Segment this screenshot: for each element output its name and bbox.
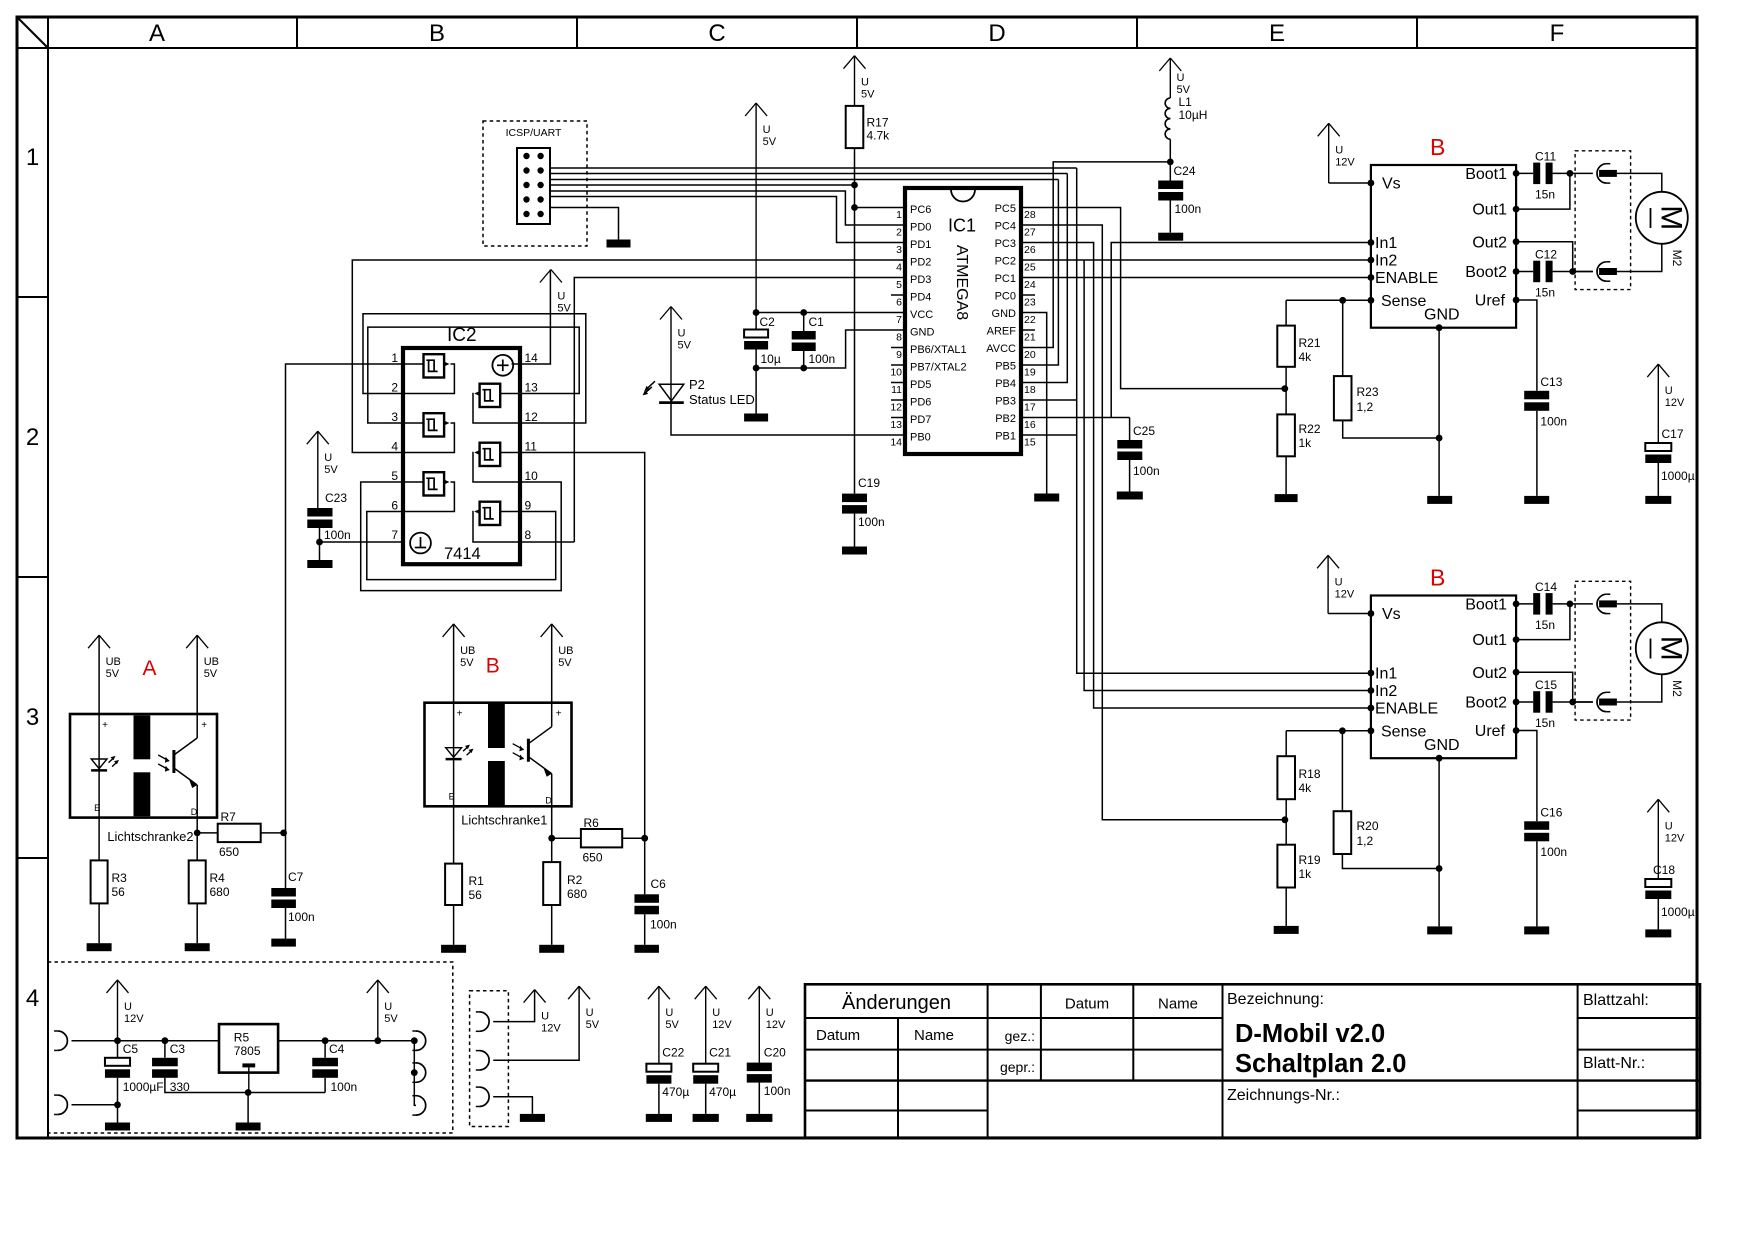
svg-text:P2: P2 bbox=[689, 377, 705, 392]
svg-text:Out2: Out2 bbox=[1472, 665, 1507, 682]
svg-text:PB5: PB5 bbox=[995, 361, 1016, 373]
svg-text:3: 3 bbox=[896, 244, 902, 256]
svg-text:100n: 100n bbox=[1175, 202, 1202, 216]
svg-text:5V: 5V bbox=[384, 1013, 398, 1025]
svg-text:PD7: PD7 bbox=[910, 414, 931, 426]
svg-text:R23: R23 bbox=[1357, 385, 1379, 399]
svg-text:U: U bbox=[124, 1001, 132, 1013]
svg-text:C4: C4 bbox=[329, 1042, 345, 1056]
svg-text:U: U bbox=[1665, 385, 1673, 397]
svg-text:100n: 100n bbox=[324, 528, 351, 542]
svg-text:GND: GND bbox=[1424, 307, 1460, 324]
svg-text:R6: R6 bbox=[584, 816, 600, 830]
svg-text:PD4: PD4 bbox=[910, 292, 931, 304]
svg-text:PB4: PB4 bbox=[995, 378, 1016, 390]
svg-text:+: + bbox=[556, 709, 562, 720]
svg-text:Vs: Vs bbox=[1382, 606, 1401, 623]
svg-text:12V: 12V bbox=[1665, 832, 1685, 844]
svg-text:PD5: PD5 bbox=[910, 379, 931, 391]
svg-text:R4: R4 bbox=[210, 871, 226, 885]
svg-text:Uref: Uref bbox=[1475, 723, 1506, 740]
svg-text:PC2: PC2 bbox=[995, 256, 1016, 268]
svg-text:Out1: Out1 bbox=[1472, 632, 1507, 649]
svg-text:24: 24 bbox=[1024, 279, 1036, 291]
svg-text:5V: 5V bbox=[586, 1019, 600, 1031]
svg-text:56: 56 bbox=[112, 885, 126, 899]
svg-text:11: 11 bbox=[525, 440, 538, 454]
svg-text:R22: R22 bbox=[1299, 422, 1321, 436]
svg-text:U: U bbox=[557, 291, 565, 303]
svg-text:C12: C12 bbox=[1535, 248, 1557, 262]
svg-text:100n: 100n bbox=[288, 910, 315, 924]
svg-text:5: 5 bbox=[896, 279, 902, 291]
svg-text:Boot1: Boot1 bbox=[1465, 597, 1507, 614]
svg-text:C22: C22 bbox=[662, 1046, 684, 1060]
svg-text:B: B bbox=[1430, 565, 1445, 591]
svg-text:15n: 15n bbox=[1535, 716, 1555, 730]
svg-text:100n: 100n bbox=[809, 352, 836, 366]
svg-text:PC3: PC3 bbox=[995, 238, 1016, 250]
svg-text:Boot1: Boot1 bbox=[1465, 166, 1507, 183]
svg-text:2: 2 bbox=[896, 227, 902, 239]
svg-text:+: + bbox=[102, 720, 108, 731]
svg-text:Name: Name bbox=[914, 1027, 954, 1044]
svg-text:4: 4 bbox=[26, 985, 39, 1012]
svg-text:PD0: PD0 bbox=[910, 222, 931, 234]
svg-text:C1: C1 bbox=[809, 315, 825, 329]
svg-text:2: 2 bbox=[391, 381, 398, 395]
svg-text:C: C bbox=[708, 20, 725, 47]
svg-text:U: U bbox=[1665, 820, 1673, 832]
svg-text:650: 650 bbox=[219, 845, 239, 859]
svg-text:Lichtschranke1: Lichtschranke1 bbox=[461, 813, 547, 828]
svg-text:100n: 100n bbox=[650, 918, 677, 932]
svg-text:PB2: PB2 bbox=[995, 413, 1016, 425]
svg-text:In2: In2 bbox=[1375, 253, 1397, 270]
svg-text:Out1: Out1 bbox=[1472, 202, 1507, 219]
svg-text:C11: C11 bbox=[1535, 150, 1556, 164]
svg-text:C19: C19 bbox=[858, 476, 880, 490]
svg-text:PB0: PB0 bbox=[910, 432, 931, 444]
svg-text:470µ: 470µ bbox=[662, 1085, 689, 1099]
svg-text:100n: 100n bbox=[1133, 464, 1160, 478]
svg-text:12: 12 bbox=[525, 410, 539, 424]
svg-text:C18: C18 bbox=[1653, 863, 1675, 877]
svg-text:C3: C3 bbox=[170, 1042, 186, 1056]
svg-text:PB1: PB1 bbox=[995, 431, 1016, 443]
svg-text:R2: R2 bbox=[567, 873, 583, 887]
svg-text:27: 27 bbox=[1024, 227, 1036, 239]
svg-text:C17: C17 bbox=[1662, 427, 1684, 441]
svg-text:25: 25 bbox=[1024, 262, 1036, 274]
svg-text:IC2: IC2 bbox=[447, 325, 477, 346]
svg-text:4: 4 bbox=[896, 262, 902, 274]
svg-text:8: 8 bbox=[896, 332, 902, 344]
svg-text:In1: In1 bbox=[1375, 666, 1397, 683]
svg-text:In1: In1 bbox=[1375, 235, 1397, 252]
svg-text:13: 13 bbox=[525, 381, 539, 395]
svg-text:1: 1 bbox=[391, 351, 398, 365]
svg-text:4k: 4k bbox=[1299, 350, 1313, 364]
svg-text:5V: 5V bbox=[763, 136, 777, 148]
svg-text:C14: C14 bbox=[1535, 580, 1557, 594]
svg-text:B: B bbox=[1430, 134, 1445, 160]
svg-text:E: E bbox=[1269, 20, 1285, 47]
svg-text:AVCC: AVCC bbox=[986, 343, 1016, 355]
svg-text:U: U bbox=[861, 77, 869, 89]
svg-text:100n: 100n bbox=[1540, 415, 1567, 429]
svg-text:1: 1 bbox=[26, 144, 39, 171]
svg-text:650: 650 bbox=[583, 851, 603, 865]
svg-text:22: 22 bbox=[1024, 314, 1036, 326]
svg-text:Lichtschranke2: Lichtschranke2 bbox=[107, 829, 193, 844]
svg-text:C20: C20 bbox=[764, 1046, 786, 1060]
svg-text:D-Mobil v2.0: D-Mobil v2.0 bbox=[1235, 1020, 1385, 1048]
svg-text:D: D bbox=[545, 796, 552, 806]
svg-text:AREF: AREF bbox=[987, 326, 1017, 338]
svg-text:5V: 5V bbox=[557, 303, 571, 315]
svg-text:Status LED: Status LED bbox=[689, 392, 755, 407]
svg-text:PC1: PC1 bbox=[995, 273, 1016, 285]
svg-text:UB: UB bbox=[460, 645, 475, 657]
svg-text:R19: R19 bbox=[1299, 853, 1321, 867]
svg-text:12V: 12V bbox=[1335, 156, 1355, 168]
svg-text:C25: C25 bbox=[1133, 424, 1155, 438]
svg-text:M2: M2 bbox=[1670, 250, 1684, 267]
svg-text:C23: C23 bbox=[325, 491, 347, 505]
svg-text:12V: 12V bbox=[1335, 588, 1355, 600]
svg-text:5V: 5V bbox=[861, 89, 875, 101]
svg-text:12V: 12V bbox=[766, 1019, 786, 1031]
svg-text:15n: 15n bbox=[1535, 188, 1555, 202]
svg-text:R3: R3 bbox=[112, 871, 128, 885]
svg-text:PC0: PC0 bbox=[995, 291, 1016, 303]
svg-text:5V: 5V bbox=[204, 668, 218, 680]
svg-text:1k: 1k bbox=[1299, 867, 1313, 881]
svg-text:5V: 5V bbox=[324, 464, 338, 476]
svg-text:13: 13 bbox=[890, 419, 902, 431]
svg-text:15n: 15n bbox=[1535, 618, 1555, 632]
svg-text:GND: GND bbox=[1424, 737, 1460, 754]
svg-text:100n: 100n bbox=[764, 1084, 791, 1098]
svg-text:23: 23 bbox=[1024, 297, 1036, 309]
svg-text:C5: C5 bbox=[123, 1042, 139, 1056]
svg-text:U: U bbox=[1177, 72, 1185, 84]
svg-text:B: B bbox=[486, 655, 500, 678]
svg-text:12V: 12V bbox=[712, 1019, 732, 1031]
svg-text:M2: M2 bbox=[1670, 680, 1684, 697]
svg-text:R1: R1 bbox=[469, 874, 485, 888]
svg-text:R21: R21 bbox=[1299, 336, 1321, 350]
svg-text:U: U bbox=[1335, 576, 1343, 588]
svg-text:12V: 12V bbox=[541, 1023, 561, 1035]
svg-text:10: 10 bbox=[525, 469, 539, 483]
svg-text:Datum: Datum bbox=[1065, 996, 1109, 1013]
svg-text:3: 3 bbox=[391, 410, 398, 424]
svg-text:VCC: VCC bbox=[910, 309, 933, 321]
svg-text:C15: C15 bbox=[1535, 678, 1557, 692]
svg-text:D: D bbox=[191, 807, 198, 817]
svg-text:15n: 15n bbox=[1535, 286, 1555, 300]
svg-text:5V: 5V bbox=[665, 1019, 679, 1031]
svg-text:R17: R17 bbox=[867, 116, 889, 130]
svg-text:100n: 100n bbox=[858, 515, 885, 529]
svg-text:M: M bbox=[1654, 205, 1687, 230]
svg-text:680: 680 bbox=[567, 887, 587, 901]
svg-text:ENABLE: ENABLE bbox=[1375, 701, 1438, 718]
svg-text:Out2: Out2 bbox=[1472, 234, 1507, 251]
svg-text:U: U bbox=[324, 452, 332, 464]
svg-text:4.7k: 4.7k bbox=[867, 129, 891, 143]
svg-text:R20: R20 bbox=[1357, 819, 1379, 833]
svg-text:ICSP/UART: ICSP/UART bbox=[506, 127, 562, 139]
svg-text:PB3: PB3 bbox=[995, 396, 1016, 408]
svg-text:15: 15 bbox=[1024, 437, 1036, 449]
svg-text:PC4: PC4 bbox=[995, 221, 1016, 233]
svg-text:R18: R18 bbox=[1299, 767, 1321, 781]
svg-text:6: 6 bbox=[896, 297, 902, 309]
svg-text:5V: 5V bbox=[460, 657, 474, 669]
svg-text:C6: C6 bbox=[651, 877, 667, 891]
svg-text:1000µ: 1000µ bbox=[1661, 905, 1695, 919]
svg-text:14: 14 bbox=[525, 351, 539, 365]
svg-text:ATMEGA8: ATMEGA8 bbox=[953, 245, 970, 320]
svg-text:Sense: Sense bbox=[1381, 293, 1426, 310]
svg-text:Datum: Datum bbox=[816, 1027, 860, 1044]
svg-text:C7: C7 bbox=[288, 870, 304, 884]
svg-text:GND: GND bbox=[910, 327, 935, 339]
svg-text:10µ: 10µ bbox=[761, 352, 781, 366]
svg-text:5V: 5V bbox=[678, 340, 692, 352]
svg-text:A: A bbox=[149, 20, 165, 47]
svg-text:28: 28 bbox=[1024, 209, 1036, 221]
svg-text:gepr.:: gepr.: bbox=[1000, 1059, 1035, 1075]
svg-text:R5: R5 bbox=[234, 1031, 250, 1045]
svg-text:Blatt-Nr.:: Blatt-Nr.: bbox=[1583, 1055, 1645, 1072]
svg-text:1000µF: 1000µF bbox=[123, 1080, 164, 1094]
svg-text:3: 3 bbox=[26, 704, 39, 731]
svg-text:U: U bbox=[1335, 144, 1343, 156]
svg-text:9: 9 bbox=[525, 499, 532, 513]
svg-text:Boot2: Boot2 bbox=[1465, 264, 1507, 281]
svg-text:Schaltplan 2.0: Schaltplan 2.0 bbox=[1235, 1050, 1406, 1078]
svg-text:Vs: Vs bbox=[1382, 176, 1401, 193]
svg-text:1k: 1k bbox=[1299, 436, 1313, 450]
svg-text:ENABLE: ENABLE bbox=[1375, 270, 1438, 287]
svg-text:Zeichnungs-Nr.:: Zeichnungs-Nr.: bbox=[1227, 1087, 1340, 1104]
svg-text:U: U bbox=[766, 1007, 774, 1019]
svg-text:B: B bbox=[429, 20, 445, 47]
svg-text:Uref: Uref bbox=[1475, 293, 1506, 310]
svg-text:Änderungen: Änderungen bbox=[842, 992, 951, 1014]
svg-text:4k: 4k bbox=[1299, 781, 1313, 795]
svg-text:6: 6 bbox=[391, 499, 398, 513]
svg-text:GND: GND bbox=[992, 308, 1017, 320]
svg-text:PD1: PD1 bbox=[910, 239, 931, 251]
svg-text:D: D bbox=[988, 20, 1005, 47]
svg-text:PB7/XTAL2: PB7/XTAL2 bbox=[910, 362, 967, 374]
svg-text:4: 4 bbox=[391, 440, 398, 454]
svg-text:100n: 100n bbox=[331, 1080, 358, 1094]
svg-text:1: 1 bbox=[896, 209, 902, 221]
svg-text:PC6: PC6 bbox=[910, 204, 931, 216]
svg-text:14: 14 bbox=[890, 437, 902, 449]
svg-text:5V: 5V bbox=[558, 657, 572, 669]
svg-text:1,2: 1,2 bbox=[1357, 834, 1374, 848]
svg-text:10: 10 bbox=[890, 367, 902, 379]
svg-text:1,2: 1,2 bbox=[1357, 400, 1374, 414]
svg-text:PB6/XTAL1: PB6/XTAL1 bbox=[910, 344, 967, 356]
svg-text:U: U bbox=[763, 124, 771, 136]
svg-text:U: U bbox=[678, 328, 686, 340]
svg-text:7: 7 bbox=[896, 314, 902, 326]
svg-text:Blattzahl:: Blattzahl: bbox=[1583, 992, 1649, 1009]
svg-text:PD2: PD2 bbox=[910, 257, 931, 269]
svg-text:PD3: PD3 bbox=[910, 274, 931, 286]
svg-text:R7: R7 bbox=[221, 810, 237, 824]
svg-text:10µH: 10µH bbox=[1179, 108, 1208, 122]
svg-text:17: 17 bbox=[1024, 402, 1036, 414]
svg-text:9: 9 bbox=[896, 349, 902, 361]
svg-text:12V: 12V bbox=[1665, 397, 1685, 409]
svg-text:1000µ: 1000µ bbox=[1661, 469, 1695, 483]
svg-text:UB: UB bbox=[204, 656, 219, 668]
svg-text:PD6: PD6 bbox=[910, 397, 931, 409]
svg-text:M: M bbox=[1654, 636, 1687, 661]
svg-text:U: U bbox=[712, 1007, 720, 1019]
svg-text:C24: C24 bbox=[1174, 164, 1196, 178]
svg-text:Name: Name bbox=[1158, 996, 1198, 1013]
svg-text:C2: C2 bbox=[760, 315, 776, 329]
svg-text:F: F bbox=[1550, 20, 1565, 47]
svg-text:U: U bbox=[384, 1001, 392, 1013]
svg-text:7414: 7414 bbox=[444, 545, 481, 563]
svg-text:A: A bbox=[143, 657, 157, 680]
svg-text:12V: 12V bbox=[124, 1013, 144, 1025]
svg-text:5V: 5V bbox=[106, 668, 120, 680]
svg-text:19: 19 bbox=[1024, 367, 1036, 379]
svg-text:E: E bbox=[94, 803, 100, 813]
svg-text:18: 18 bbox=[1024, 384, 1036, 396]
svg-text:16: 16 bbox=[1024, 419, 1036, 431]
svg-text:UB: UB bbox=[558, 645, 573, 657]
svg-text:U: U bbox=[665, 1007, 673, 1019]
svg-text:2: 2 bbox=[26, 424, 39, 451]
svg-text:5: 5 bbox=[391, 469, 398, 483]
svg-text:+: + bbox=[457, 709, 463, 720]
svg-text:UB: UB bbox=[106, 656, 121, 668]
svg-text:7: 7 bbox=[391, 528, 398, 542]
svg-text:11: 11 bbox=[891, 384, 902, 396]
svg-text:U: U bbox=[541, 1011, 549, 1023]
svg-text:Boot2: Boot2 bbox=[1465, 695, 1507, 712]
svg-text:Bezeichnung:: Bezeichnung: bbox=[1227, 991, 1324, 1008]
svg-text:In2: In2 bbox=[1375, 683, 1397, 700]
svg-text:C13: C13 bbox=[1540, 375, 1562, 389]
svg-text:C16: C16 bbox=[1540, 806, 1562, 820]
svg-text:gez.:: gez.: bbox=[1005, 1028, 1035, 1044]
svg-text:20: 20 bbox=[1024, 349, 1036, 361]
svg-text:12: 12 bbox=[890, 402, 902, 414]
svg-text:470µ: 470µ bbox=[709, 1085, 736, 1099]
svg-text:IC1: IC1 bbox=[948, 216, 976, 236]
svg-text:680: 680 bbox=[210, 885, 230, 899]
svg-text:100n: 100n bbox=[1540, 845, 1567, 859]
svg-text:C21: C21 bbox=[709, 1046, 731, 1060]
svg-text:8: 8 bbox=[525, 528, 532, 542]
svg-text:26: 26 bbox=[1024, 244, 1036, 256]
svg-text:U: U bbox=[586, 1007, 594, 1019]
svg-text:E: E bbox=[449, 792, 455, 802]
svg-text:Sense: Sense bbox=[1381, 723, 1426, 740]
svg-text:PC5: PC5 bbox=[995, 203, 1016, 215]
svg-text:7805: 7805 bbox=[234, 1044, 261, 1058]
svg-text:+: + bbox=[201, 720, 207, 731]
svg-text:56: 56 bbox=[469, 888, 483, 902]
svg-text:L1: L1 bbox=[1179, 95, 1193, 109]
svg-text:21: 21 bbox=[1024, 332, 1036, 344]
